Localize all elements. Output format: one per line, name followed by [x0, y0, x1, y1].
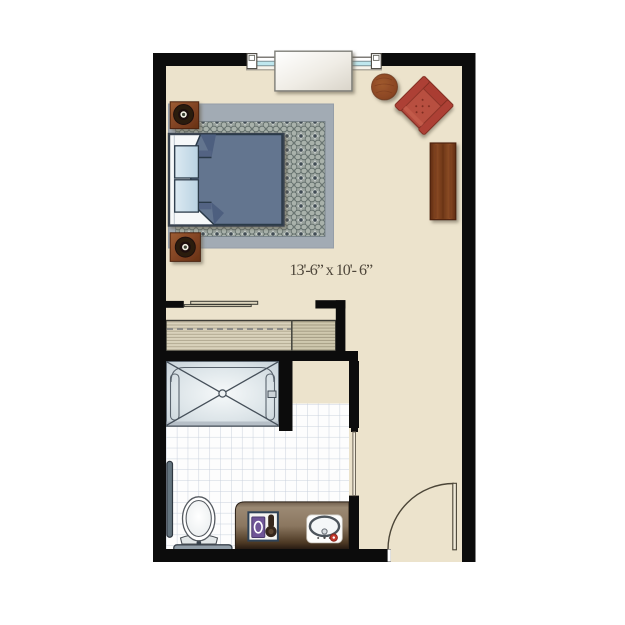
svg-text:13'-6” x 10'- 6”: 13'-6” x 10'- 6”	[289, 262, 373, 279]
